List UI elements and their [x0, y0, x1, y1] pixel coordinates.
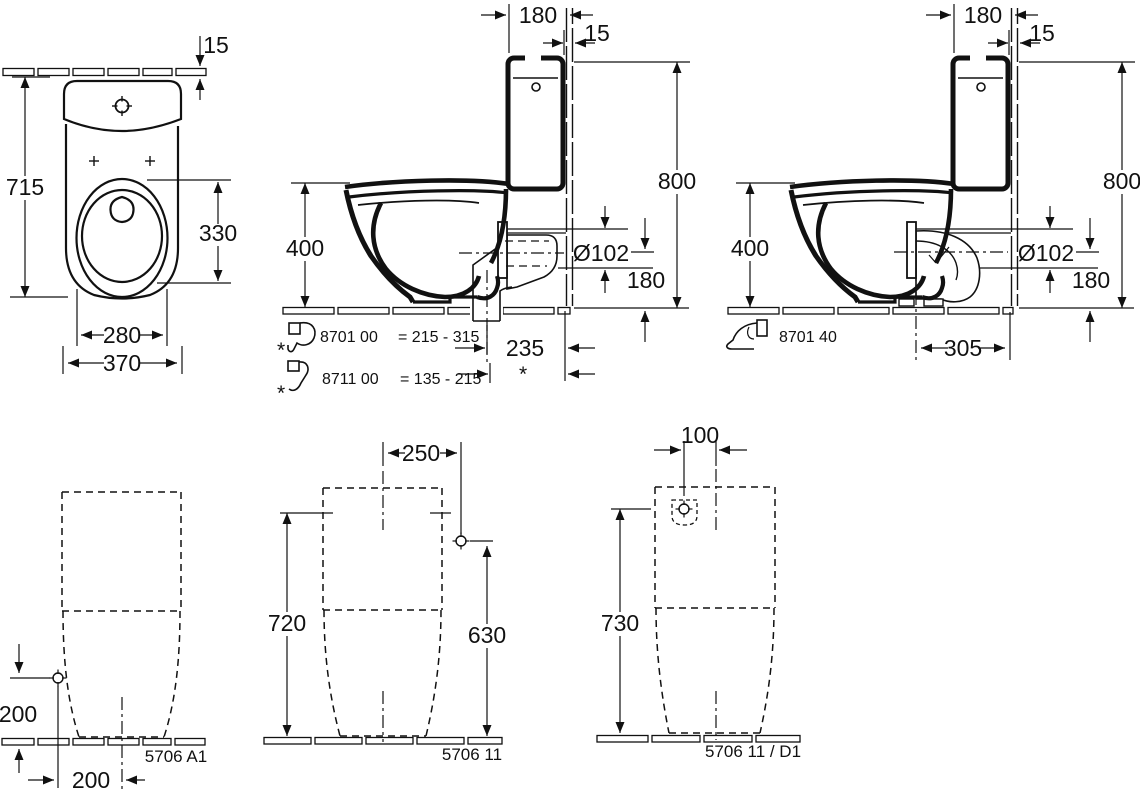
dim-inlet-offset: 200: [72, 767, 110, 790]
outlet-flange: [907, 222, 916, 278]
dim-outlet-diameter: Ø102: [1018, 240, 1074, 266]
dim-outlet-distance-asterisk: *: [519, 363, 527, 386]
dim-outlet-distance: 235: [506, 335, 544, 361]
model-code: 5706 11: [442, 745, 502, 764]
dim-total-height: 800: [1103, 168, 1140, 194]
wc-dimension-drawing: 15 715 330 280: [0, 0, 1140, 790]
dim-outlet-height: 180: [1072, 267, 1110, 293]
dim-height: 720: [268, 610, 306, 636]
model-code: 5706 A1: [145, 747, 207, 766]
dim-width: 370: [103, 350, 141, 376]
dim-outlet-distance: 305: [944, 335, 982, 361]
dim-wall-gap: 15: [203, 32, 229, 58]
dim-outlet-diameter: Ø102: [573, 240, 629, 266]
dim-seat-depth: 330: [199, 220, 237, 246]
dim-rim-height: 400: [731, 235, 769, 261]
footnote-code: 8711 00: [322, 371, 379, 388]
dim-cistern-depth: 180: [519, 2, 557, 28]
floor-hatch: [283, 308, 570, 315]
floor-hatch: [2, 739, 205, 746]
dim-seat-width: 280: [103, 322, 141, 348]
dim-total-height: 800: [658, 168, 696, 194]
footnote-asterisk: *: [277, 339, 285, 362]
floor-hatch: [728, 308, 1013, 315]
dim-inlet-offset: 100: [681, 422, 719, 448]
dim-wall-thickness: 15: [584, 20, 610, 46]
water-surface: [110, 197, 133, 222]
model-code: 5706 11 / D1: [705, 742, 801, 761]
dim-inlet-height: 630: [468, 622, 506, 648]
technical-drawing-page: 15 715 330 280: [0, 0, 1140, 790]
dim-inlet-height: 200: [0, 701, 37, 727]
dim-rim-height: 400: [286, 235, 324, 261]
footnote-asterisk: *: [277, 382, 285, 405]
dim-height: 715: [6, 174, 44, 200]
wall-hatch-top: [3, 69, 206, 76]
dim-wall-thickness: 15: [1029, 20, 1055, 46]
dim-inlet-offset: 250: [402, 440, 440, 466]
dim-cistern-depth: 180: [964, 2, 1002, 28]
footnote-range: = 215 - 315: [398, 329, 480, 346]
footnote-code: 8701 00: [320, 329, 378, 346]
dim-outlet-height: 180: [627, 267, 665, 293]
cistern-front: [64, 81, 181, 131]
footnote-range: = 135 - 215: [400, 371, 482, 388]
dim-height: 730: [601, 610, 639, 636]
footnote-code: 8701 40: [779, 329, 837, 346]
